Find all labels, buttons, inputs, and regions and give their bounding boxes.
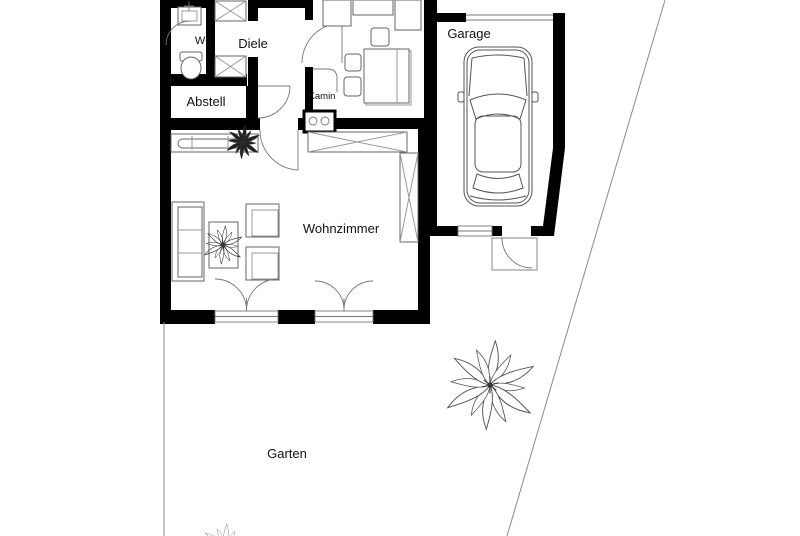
closet-cross-top [215, 1, 246, 21]
wardrobe-top [308, 132, 407, 152]
dining-chair-left-1 [345, 54, 361, 71]
dining-door [302, 23, 342, 63]
label-garage: Garage [447, 26, 490, 41]
garden-plant-bottom-icon [201, 524, 248, 536]
living-room [171, 125, 418, 281]
dining-area [323, 0, 421, 105]
fireplace-counter [313, 69, 337, 92]
garden-tree-icon [446, 341, 535, 429]
garage-gate [466, 15, 553, 20]
french-door-left [215, 279, 278, 322]
label-abstell: Abstell [186, 94, 225, 109]
dining-chair-left-2 [344, 77, 361, 96]
floor-plan-page: WC Diele Abstell Kamin Wohnzimmer Garage… [0, 0, 800, 536]
armchair-top [246, 204, 279, 237]
french-door-right [315, 281, 373, 322]
garage-side-door [492, 238, 537, 270]
dining-chair-top [371, 28, 389, 46]
dining-cabinet-2 [353, 0, 393, 15]
armchair-bottom [246, 247, 279, 280]
abstell-door [258, 86, 290, 118]
label-wohnzimmer: Wohnzimmer [303, 221, 380, 236]
dining-cabinet-3 [395, 0, 421, 30]
label-garten: Garten [267, 446, 307, 461]
living-room-door [260, 130, 298, 170]
sofa [172, 202, 204, 281]
garden [201, 341, 535, 536]
dining-table [364, 49, 411, 105]
closet-cross-bottom [215, 56, 246, 77]
label-wc: WC [195, 35, 213, 47]
label-kamin: Kamin [309, 91, 336, 102]
car-icon [458, 47, 538, 206]
floor-plan-canvas: WC Diele Abstell Kamin Wohnzimmer Garage… [0, 0, 800, 536]
dining-cabinet-1 [323, 0, 351, 26]
garage-window [458, 226, 492, 236]
wardrobe-right [400, 153, 418, 242]
toilet-icon [180, 52, 202, 79]
label-diele: Diele [238, 36, 268, 51]
